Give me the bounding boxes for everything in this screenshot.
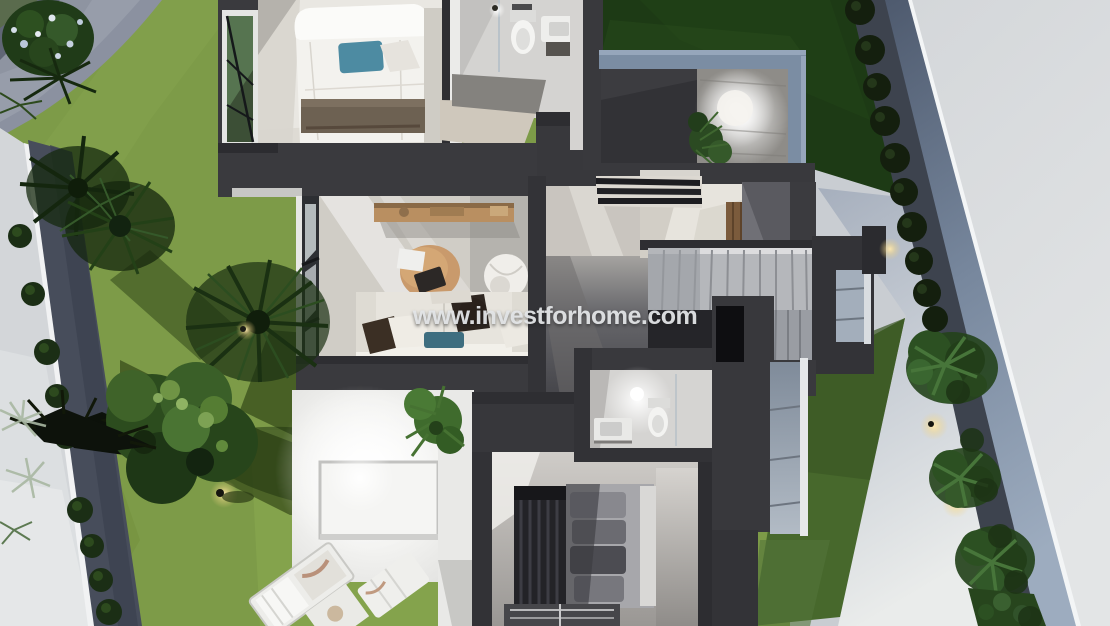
svg-text:www.investforhome.com: www.investforhome.com (412, 302, 697, 330)
